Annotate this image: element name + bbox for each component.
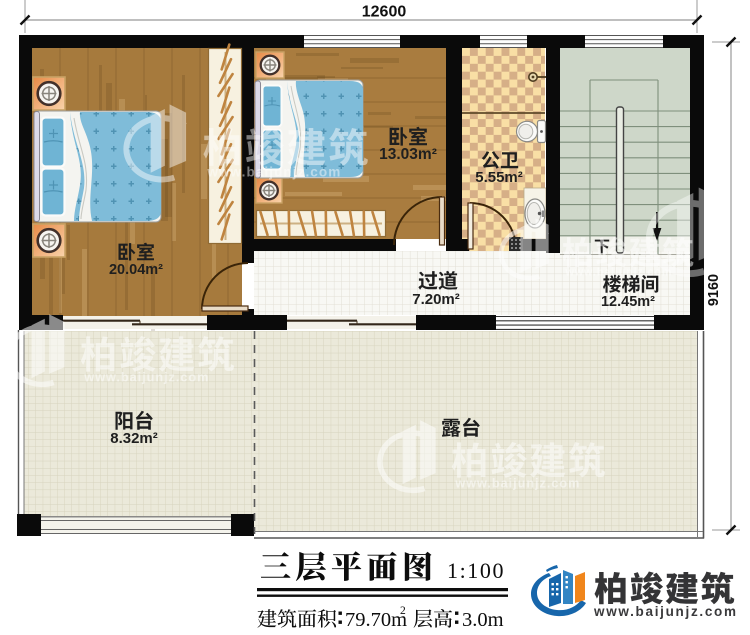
svg-text:20.04m²: 20.04m² — [109, 262, 163, 278]
svg-text:1:100: 1:100 — [447, 558, 505, 583]
svg-text:5.55m²: 5.55m² — [475, 169, 523, 186]
svg-text:3.0m: 3.0m — [462, 609, 504, 631]
svg-text:9160: 9160 — [706, 274, 722, 306]
svg-text:12600: 12600 — [362, 4, 407, 21]
svg-text:8.32m²: 8.32m² — [110, 430, 158, 447]
svg-text:13.03m²: 13.03m² — [379, 146, 437, 163]
svg-text:2: 2 — [400, 605, 406, 617]
svg-text:79.70m: 79.70m — [345, 609, 407, 631]
svg-text:7.20m²: 7.20m² — [412, 291, 460, 308]
svg-text:12.45m²: 12.45m² — [601, 294, 655, 310]
svg-text:www.baijunjz.com: www.baijunjz.com — [593, 604, 738, 619]
